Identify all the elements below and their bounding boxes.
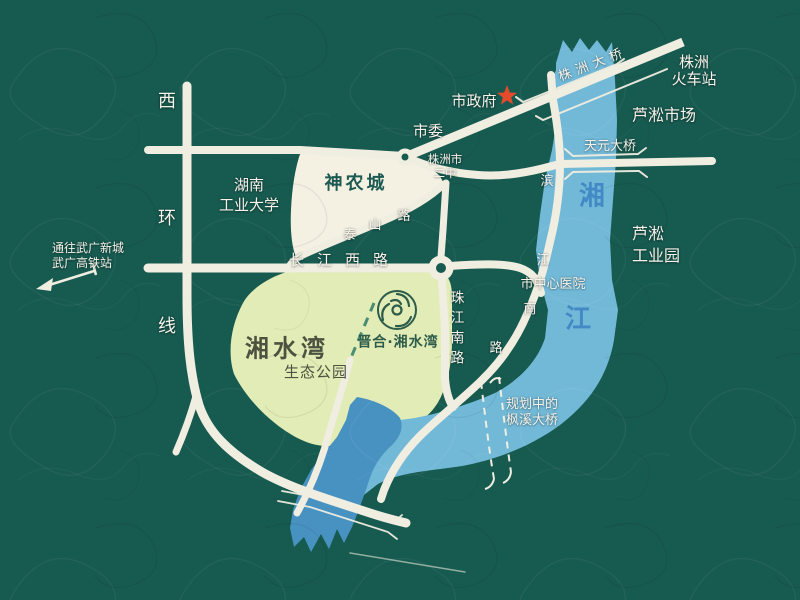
label-shennong-city: 神农城 xyxy=(325,173,388,195)
label-eco-park: 生态公园 xyxy=(284,363,348,381)
label-to-wuguang: 通往武广新城 武广高铁站 xyxy=(52,241,124,271)
label-taishan-2: 山 xyxy=(368,218,381,234)
label-zhuzhou-station: 株洲 火车站 xyxy=(671,54,716,88)
junction-node-inner xyxy=(402,154,409,161)
label-west-ring-3: 线 xyxy=(158,316,176,338)
label-tianyuan-bridge: 天元大桥 xyxy=(584,139,636,155)
label-city-government: 市政府 xyxy=(451,92,496,110)
label-city-committee: 市委 xyxy=(413,122,443,140)
label-west-ring-1: 西 xyxy=(158,91,176,113)
label-lusong-industrial: 芦淞 工业园 xyxy=(632,223,680,267)
label-west-ring-2: 环 xyxy=(158,208,176,230)
label-binjiang-4: 路 xyxy=(489,341,502,357)
label-jinhe: 晋合·湘水湾 xyxy=(357,335,438,352)
contour-texture xyxy=(0,0,800,600)
label-river-char-xiang: 湘 xyxy=(579,181,605,212)
label-planned-bridge: 规划中的 枫溪大桥 xyxy=(506,397,558,429)
label-hospital: 市中心医院 xyxy=(520,277,585,293)
label-binjiang-1: 滨 xyxy=(540,174,553,190)
label-lusong-market: 芦淞市场 xyxy=(632,105,696,124)
label-taishan-1: 泰 xyxy=(343,228,356,244)
label-no2-school: 株洲市 二中 xyxy=(428,152,463,180)
label-taishan-3: 路 xyxy=(397,209,410,225)
roundabout-inner xyxy=(436,263,446,273)
label-changjiang-west-road: 长江西路 xyxy=(289,251,401,269)
label-hunan-university: 湖南 工业大学 xyxy=(219,175,279,215)
label-binjiang-3: 南 xyxy=(523,302,536,318)
location-map[interactable]: 西 环 线 湖南 工业大学 神农城 通往武广新城 武广高铁站 长江西路 泰 山 … xyxy=(0,0,800,600)
map-canvas xyxy=(0,0,800,600)
label-binjiang-2: 江 xyxy=(536,253,549,269)
label-zhujiang-south-road: 珠江南路 xyxy=(448,290,465,370)
label-river-char-jiang: 江 xyxy=(565,304,591,335)
label-xiangshuiwan: 湘水湾 xyxy=(245,335,329,364)
